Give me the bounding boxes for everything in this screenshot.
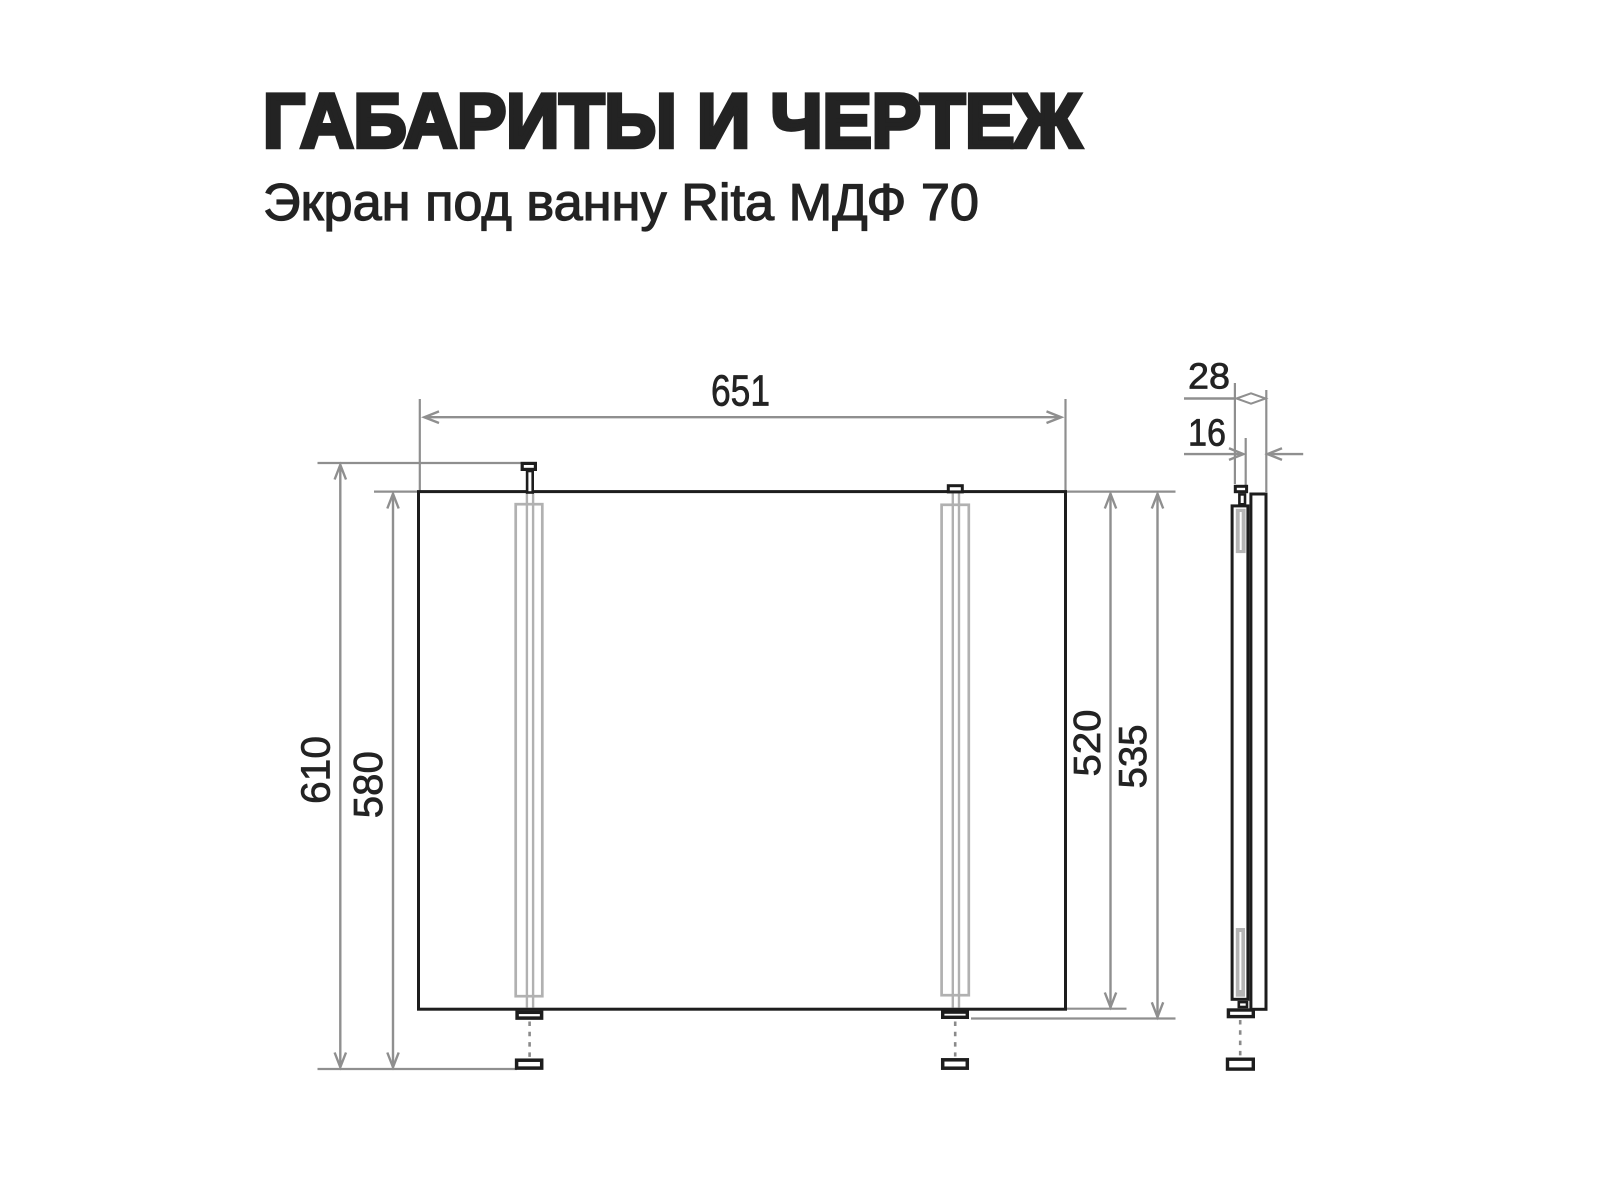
svg-text:28: 28 xyxy=(1188,356,1230,397)
svg-text:610: 610 xyxy=(293,736,339,804)
svg-text:16: 16 xyxy=(1188,412,1226,454)
svg-text:651: 651 xyxy=(711,368,770,416)
svg-text:580: 580 xyxy=(345,751,391,818)
svg-text:ГАБАРИТЫ И ЧЕРТЕЖ: ГАБАРИТЫ И ЧЕРТЕЖ xyxy=(263,79,1082,164)
svg-text:520: 520 xyxy=(1067,710,1109,777)
svg-text:Экран под ванну Rita МДФ 70: Экран под ванну Rita МДФ 70 xyxy=(263,174,979,232)
svg-text:535: 535 xyxy=(1112,725,1155,789)
